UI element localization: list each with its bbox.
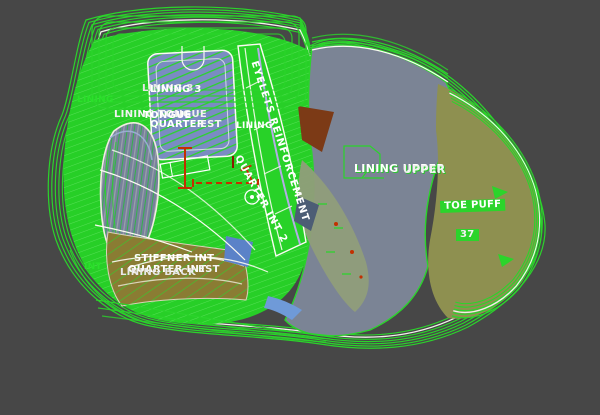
eyelet-dot	[250, 195, 254, 199]
piece-lining-tongue[interactable]	[147, 50, 237, 160]
piece-toe-puff[interactable]	[428, 84, 542, 319]
pattern-pieces	[64, 28, 543, 336]
cad-stage: LINING 3LINING 3LININGLINING TONGUETONGU…	[0, 0, 600, 415]
pattern-canvas[interactable]	[0, 0, 600, 415]
